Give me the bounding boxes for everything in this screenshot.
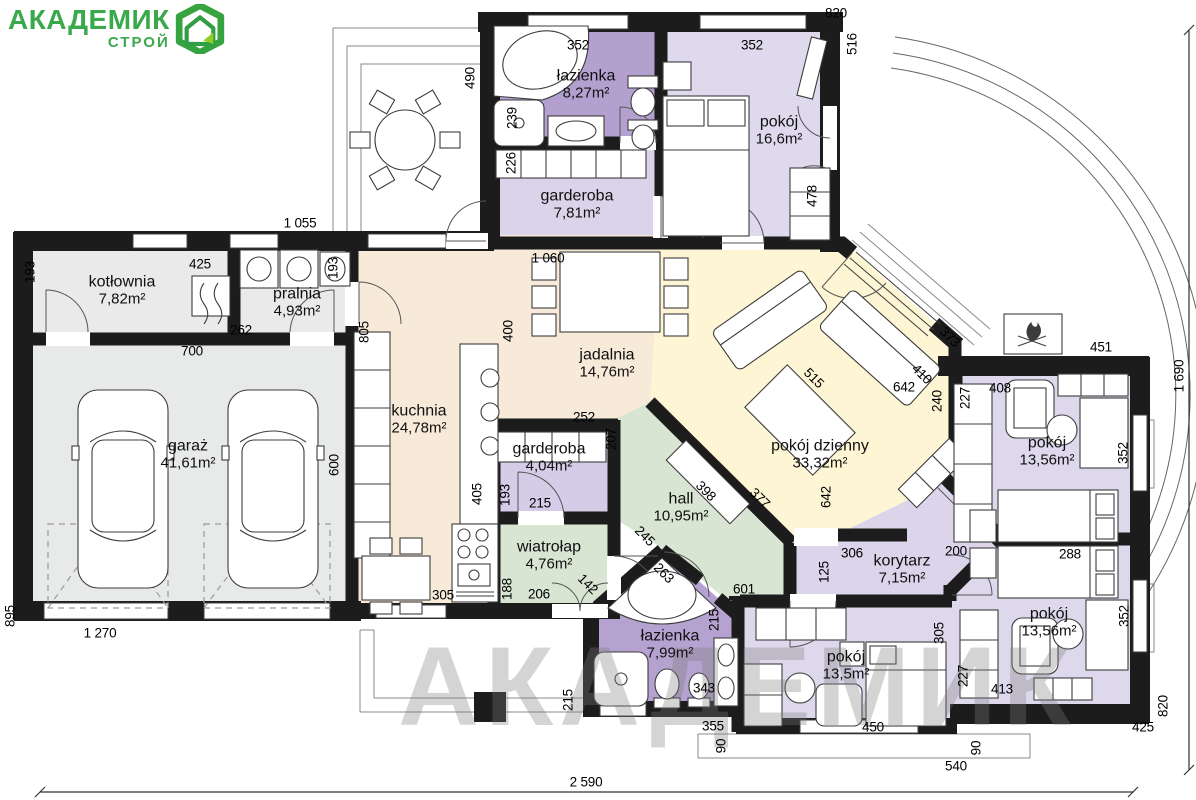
wardrobe xyxy=(790,168,830,240)
wardrobe-strip xyxy=(498,432,606,462)
logo-title: АКАДЕМИК xyxy=(8,4,170,36)
bed xyxy=(998,490,1118,542)
shelf xyxy=(1058,374,1128,396)
terrace-table xyxy=(350,90,460,190)
car-icon xyxy=(72,390,174,588)
nightstand xyxy=(663,62,691,90)
wardrobe-strip xyxy=(496,150,646,178)
nightstand xyxy=(970,548,996,578)
laundry-appliances xyxy=(240,250,350,288)
logo-house-icon xyxy=(175,4,225,54)
floor-plan-page: АКАДЕМИК СТРОЙ АКАДЕМИК xyxy=(0,0,1196,800)
bathroom-sink xyxy=(548,116,604,146)
bed xyxy=(998,546,1118,598)
watermark: АКАДЕМИК xyxy=(398,622,1077,751)
logo: АКАДЕМИК СТРОЙ xyxy=(8,4,225,54)
logo-subtitle: СТРОЙ xyxy=(108,34,170,51)
bed xyxy=(663,96,749,236)
nightstand xyxy=(970,510,996,542)
toilet xyxy=(628,76,658,116)
fireplace-icon xyxy=(1004,314,1062,354)
dining-table xyxy=(532,252,688,336)
shower-tray xyxy=(494,100,544,146)
car-icon xyxy=(222,390,324,588)
